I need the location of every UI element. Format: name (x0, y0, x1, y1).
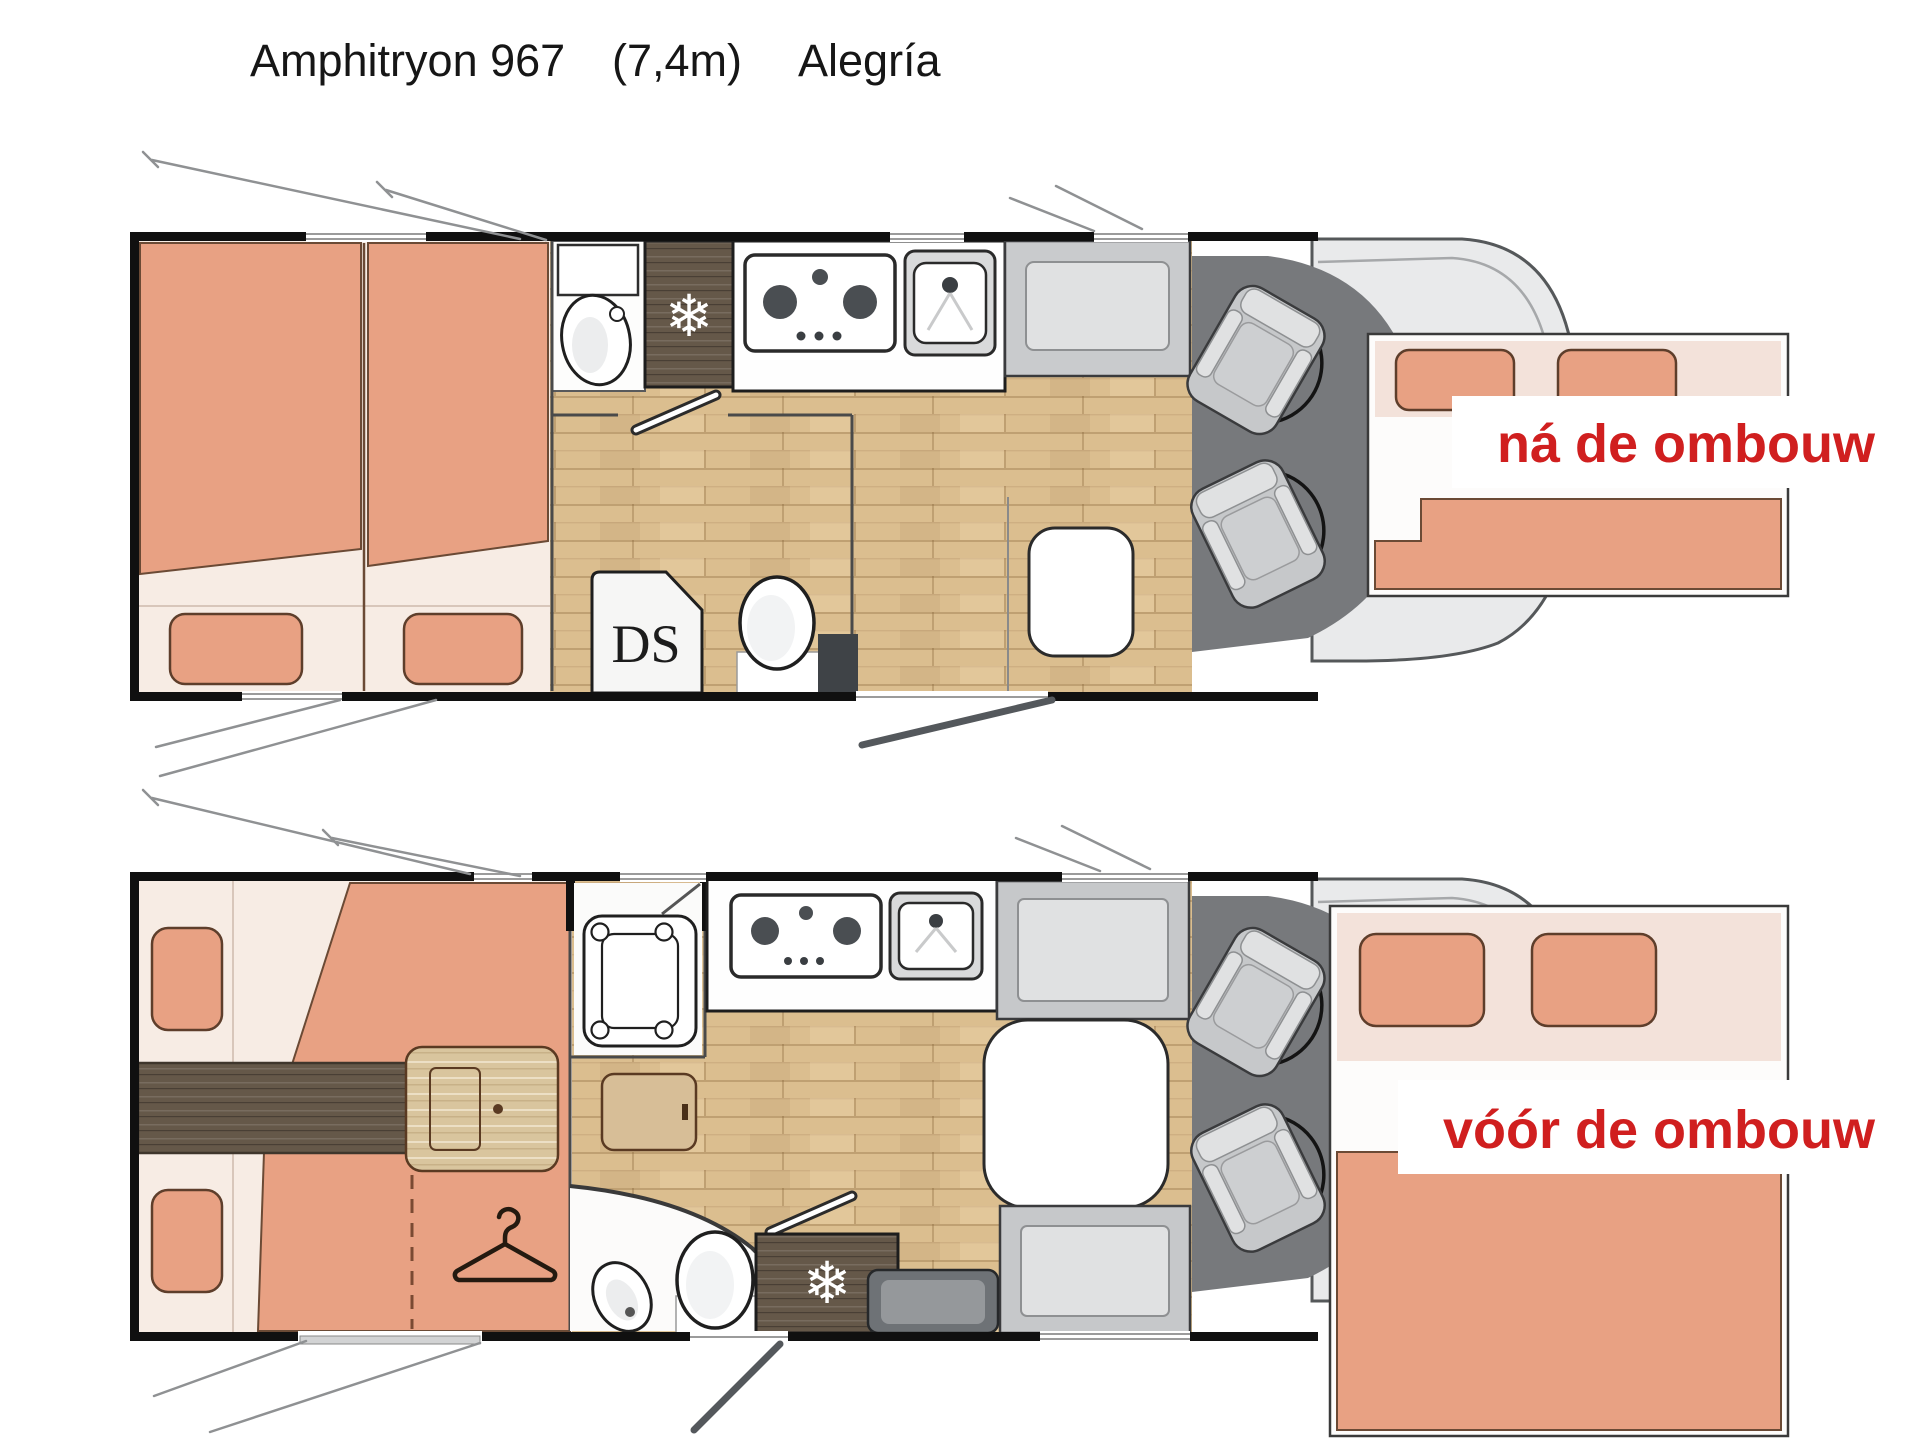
pillow (404, 614, 522, 684)
title-name: Alegría (798, 35, 942, 86)
mattress (1375, 499, 1781, 589)
floorplan-before-conversion: ❄ (130, 790, 1920, 1436)
mattress-left (140, 243, 361, 574)
kitchen-block (733, 241, 1005, 391)
cistern (558, 245, 638, 295)
fridge: ❄ (645, 241, 733, 387)
snowflake-icon: ❄ (665, 284, 714, 349)
mattress-right (368, 243, 548, 566)
table (1029, 528, 1133, 656)
entry-door-swing (862, 700, 1052, 745)
twin-beds (138, 241, 550, 693)
entry-door-swing (694, 1344, 780, 1430)
label-before-text: vóór de ombouw (1443, 1100, 1876, 1160)
title-length: (7,4m) (612, 35, 742, 86)
snowflake-icon: ❄ (803, 1251, 852, 1316)
ds-label: DS (611, 614, 680, 674)
wall-post (566, 877, 575, 931)
bed-walkway (138, 1047, 558, 1171)
pillow (1360, 934, 1484, 1026)
pillow (152, 928, 222, 1030)
entry-step (818, 634, 858, 693)
floorplan-after-conversion: ❄ (130, 152, 1920, 776)
page-title: Amphitryon 967 (7,4m) Alegría (250, 35, 942, 86)
floorplan-page: Amphitryon 967 (7,4m) Alegría (0, 0, 1920, 1440)
pillow (1532, 934, 1656, 1026)
pillow (170, 614, 302, 684)
kitchen-block (707, 877, 997, 1011)
table (984, 1020, 1168, 1208)
label-after-text: ná de ombouw (1497, 414, 1876, 474)
sink-icon (905, 251, 995, 355)
pillow (152, 1190, 222, 1292)
stove-icon (731, 895, 881, 977)
shower (574, 883, 702, 1055)
stove-icon (745, 255, 895, 351)
vanity-cabinet (602, 1074, 696, 1150)
sink-icon (890, 893, 982, 979)
title-model: Amphitryon 967 (250, 35, 565, 86)
label-after: ná de ombouw (1452, 396, 1920, 488)
floorplan-canvas: Amphitryon 967 (7,4m) Alegría (0, 0, 1920, 1440)
toilet-room (552, 241, 645, 391)
side-cabinet (1005, 241, 1190, 376)
label-before: vóór de ombouw (1398, 1080, 1920, 1174)
